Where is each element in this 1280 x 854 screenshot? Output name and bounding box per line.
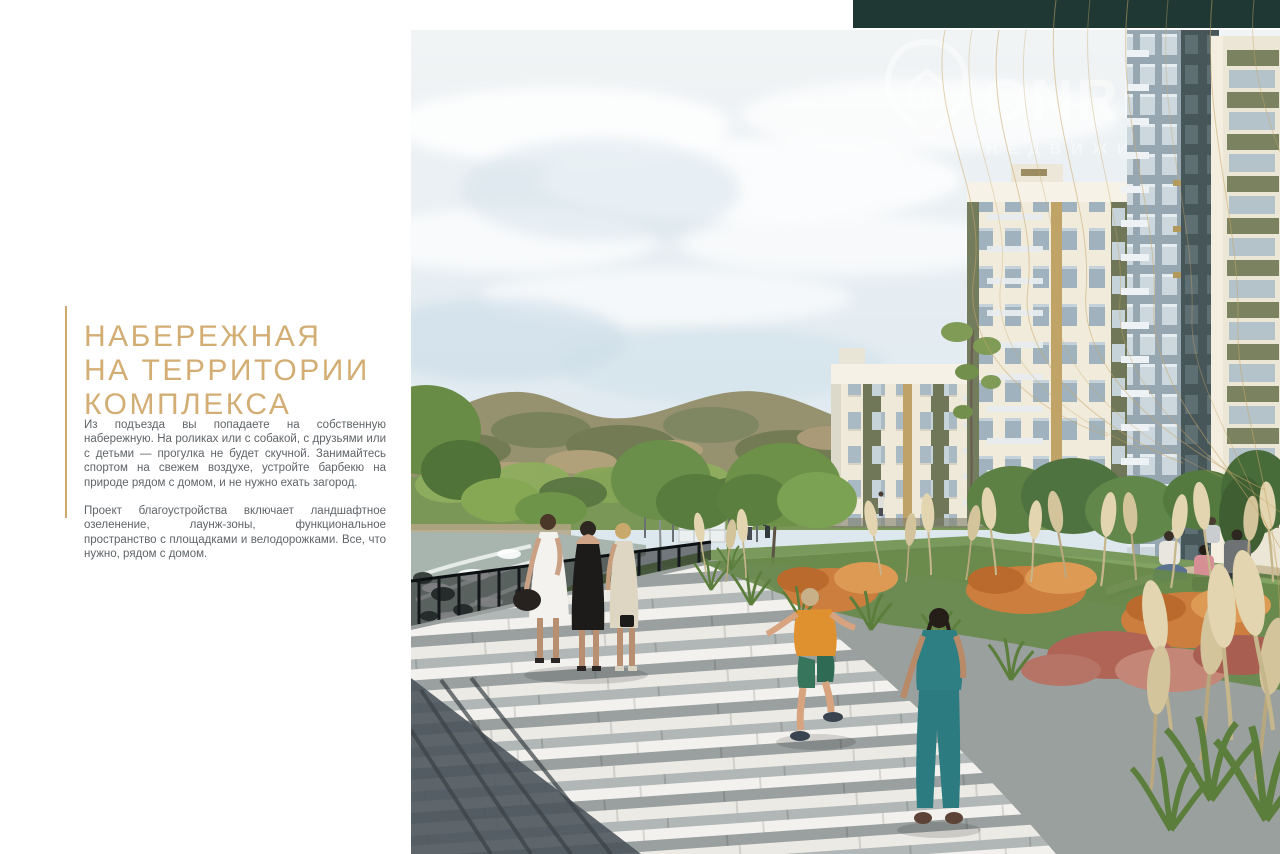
title-line-3: КОМПЛЕКСА — [84, 388, 414, 422]
intro-paragraph: Из подъезда вы попадаете на собственную … — [84, 418, 386, 490]
title-line-1: НАБЕРЕЖНАЯ — [84, 320, 414, 354]
hero-render: ONRE НЕДВИЖИ — [411, 30, 1280, 854]
title-line-2: НА ТЕРРИТОРИИ — [84, 354, 414, 388]
header-bar — [853, 0, 1280, 28]
brand-subtitle: НЕДВИЖИ — [986, 141, 1139, 158]
accent-line — [65, 306, 67, 518]
body-copy: Из подъезда вы попадаете на собственную … — [84, 418, 386, 576]
page-title: НАБЕРЕЖНАЯ НА ТЕРРИТОРИИ КОМПЛЕКСА — [84, 320, 414, 422]
brochure-page: НАБЕРЕЖНАЯ НА ТЕРРИТОРИИ КОМПЛЕКСА Из по… — [0, 0, 1280, 854]
details-paragraph: Проект благоустройства включает ландшафт… — [84, 504, 386, 562]
